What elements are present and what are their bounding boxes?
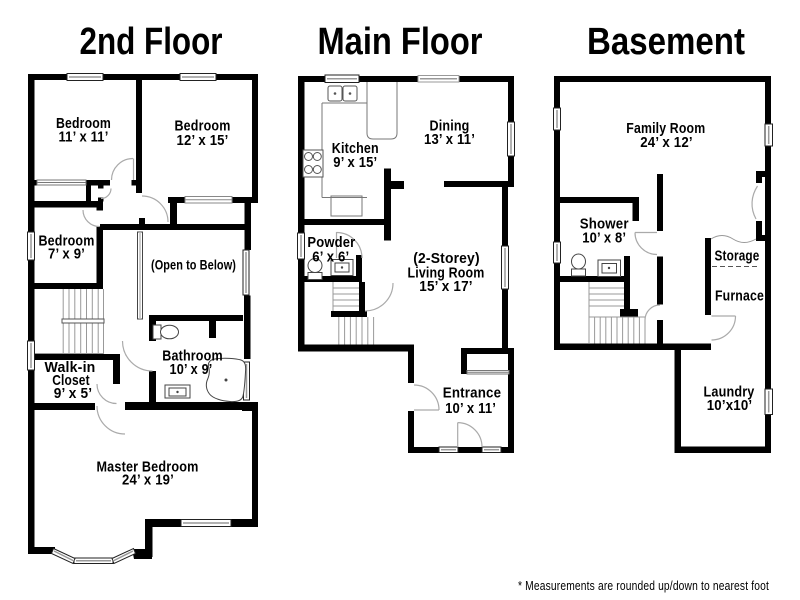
- svg-text:Main Floor: Main Floor: [318, 21, 483, 63]
- svg-text:10’ x 11’: 10’ x 11’: [445, 400, 496, 417]
- svg-text:24’ x 12’: 24’ x 12’: [640, 134, 693, 151]
- svg-text:13’ x 11’: 13’ x 11’: [424, 131, 475, 148]
- svg-text:6’ x 6’: 6’ x 6’: [312, 248, 349, 265]
- svg-text:11’ x 11’: 11’ x 11’: [59, 129, 109, 146]
- svg-text:9’ x 5’: 9’ x 5’: [54, 385, 93, 402]
- svg-text:Storage: Storage: [715, 248, 760, 265]
- svg-text:12’ x 15’: 12’ x 15’: [177, 132, 229, 149]
- svg-text:* Measurements are rounded up/: * Measurements are rounded up/down to ne…: [518, 579, 769, 593]
- svg-text:10’x10’: 10’x10’: [707, 397, 753, 414]
- svg-text:7’ x 9’: 7’ x 9’: [48, 246, 85, 263]
- svg-text:10’ x 9’: 10’ x 9’: [170, 361, 213, 378]
- svg-text:2nd Floor: 2nd Floor: [80, 21, 223, 63]
- svg-text:(Open to Below): (Open to Below): [151, 258, 236, 273]
- svg-text:15’ x 17’: 15’ x 17’: [419, 278, 473, 295]
- svg-text:24’ x 19’: 24’ x 19’: [122, 472, 174, 489]
- svg-text:9’ x 15’: 9’ x 15’: [333, 154, 377, 171]
- svg-text:10’ x 8’: 10’ x 8’: [582, 230, 626, 247]
- svg-text:Furnace: Furnace: [715, 288, 764, 305]
- svg-text:Basement: Basement: [587, 21, 745, 63]
